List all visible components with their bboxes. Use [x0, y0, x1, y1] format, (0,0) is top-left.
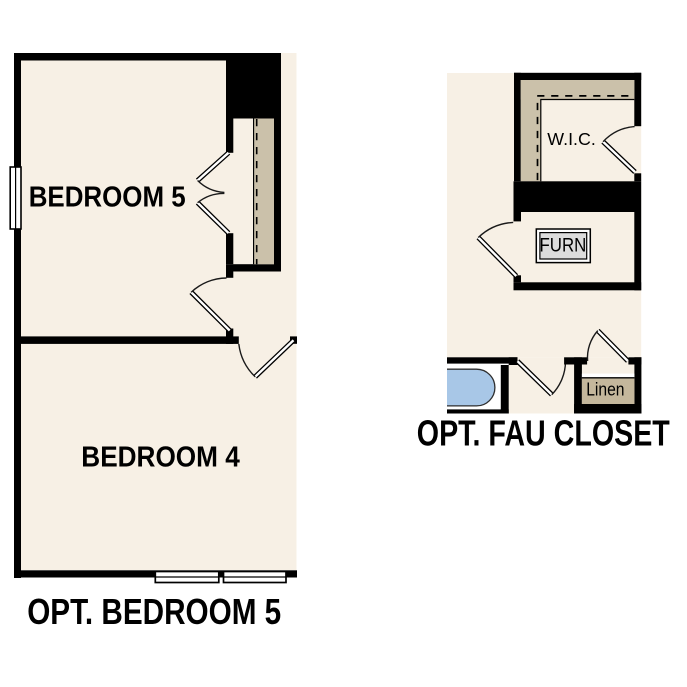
svg-text:OPT. FAU CLOSET: OPT. FAU CLOSET [417, 413, 670, 454]
svg-text:FURN: FURN [540, 236, 587, 257]
svg-text:BEDROOM 5: BEDROOM 5 [29, 181, 186, 213]
svg-text:OPT. BEDROOM 5: OPT. BEDROOM 5 [27, 591, 281, 632]
svg-text:BEDROOM 4: BEDROOM 4 [81, 441, 240, 473]
svg-text:W.I.C.: W.I.C. [547, 129, 596, 149]
svg-text:Linen: Linen [586, 379, 624, 400]
